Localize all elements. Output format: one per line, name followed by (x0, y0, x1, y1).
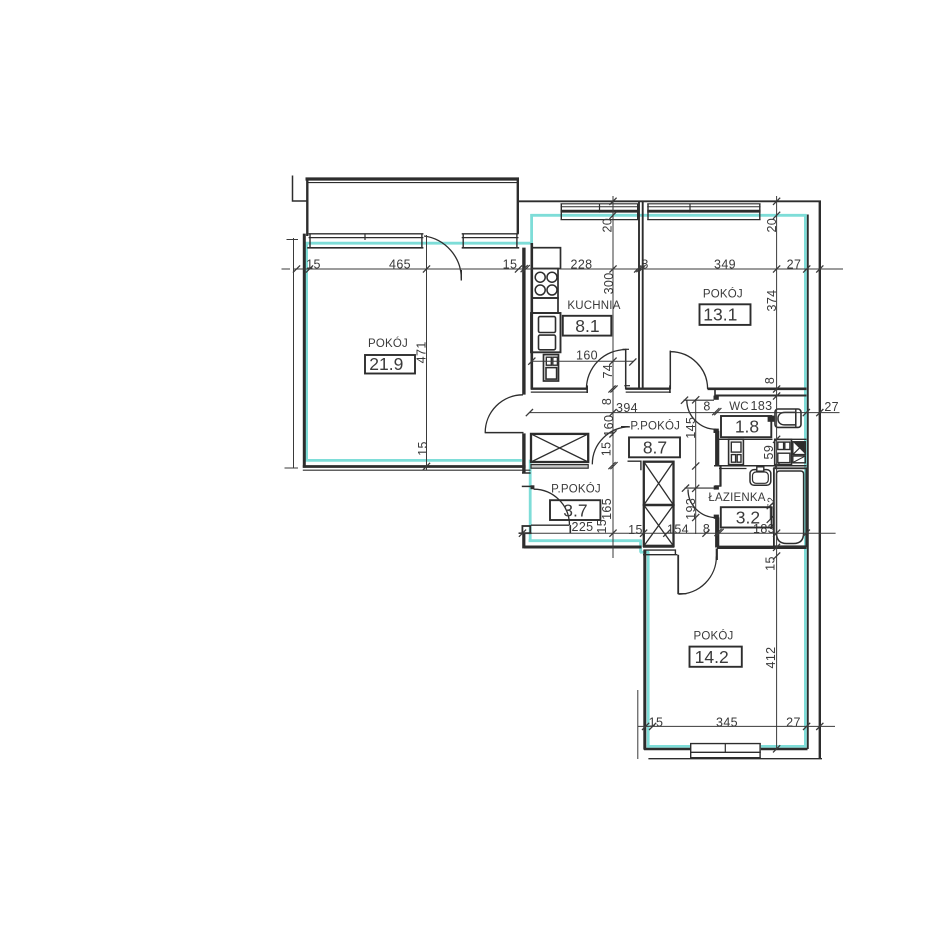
svg-text:15: 15 (503, 257, 518, 271)
svg-text:471: 471 (415, 341, 429, 363)
svg-text:160: 160 (602, 415, 616, 437)
svg-text:WC: WC (729, 401, 749, 413)
svg-text:349: 349 (714, 257, 736, 271)
svg-text:POKÓJ: POKÓJ (703, 287, 743, 300)
svg-text:15: 15 (416, 441, 430, 456)
svg-text:183: 183 (750, 399, 772, 413)
svg-text:15: 15 (595, 519, 609, 534)
svg-text:20: 20 (765, 218, 779, 233)
svg-text:145: 145 (684, 417, 698, 439)
svg-text:20: 20 (601, 218, 615, 233)
svg-text:225: 225 (571, 520, 593, 534)
svg-text:59: 59 (762, 445, 776, 460)
svg-text:ŁAZIENKA: ŁAZIENKA (708, 492, 765, 504)
svg-text:154: 154 (667, 523, 689, 537)
svg-text:27: 27 (824, 400, 839, 414)
svg-text:300: 300 (602, 272, 616, 294)
svg-text:8.7: 8.7 (643, 437, 667, 457)
svg-text:15: 15 (628, 523, 643, 537)
svg-text:1.8: 1.8 (735, 417, 759, 437)
svg-text:15: 15 (600, 442, 614, 457)
svg-text:8: 8 (763, 377, 777, 384)
svg-text:P.POKÓJ: P.POKÓJ (630, 420, 680, 433)
svg-text:8: 8 (703, 522, 710, 536)
svg-text:374: 374 (765, 289, 779, 311)
svg-text:193: 193 (684, 498, 698, 520)
svg-text:14.2: 14.2 (695, 647, 729, 667)
svg-text:8: 8 (600, 398, 614, 405)
svg-text:160: 160 (576, 348, 598, 362)
svg-text:228: 228 (570, 257, 592, 271)
svg-text:465: 465 (389, 257, 411, 271)
svg-text:394: 394 (616, 401, 638, 415)
svg-text:8.1: 8.1 (575, 316, 599, 336)
svg-text:8: 8 (641, 257, 648, 271)
svg-text:21.9: 21.9 (369, 354, 403, 374)
svg-text:345: 345 (716, 715, 738, 729)
svg-text:POKÓJ: POKÓJ (694, 630, 734, 643)
svg-text:3.7: 3.7 (563, 500, 587, 520)
svg-text:15: 15 (764, 556, 778, 571)
svg-text:165: 165 (600, 498, 614, 520)
svg-text:3.2: 3.2 (736, 507, 760, 527)
svg-text:27: 27 (787, 257, 802, 271)
svg-text:412: 412 (764, 646, 778, 668)
svg-text:13.1: 13.1 (703, 305, 737, 325)
svg-text:POKÓJ: POKÓJ (368, 337, 408, 350)
svg-text:8: 8 (703, 399, 710, 413)
svg-text:15: 15 (306, 257, 321, 271)
svg-text:KUCHNIA: KUCHNIA (567, 300, 620, 312)
svg-text:15: 15 (649, 715, 664, 729)
svg-text:27: 27 (786, 715, 801, 729)
svg-text:74: 74 (601, 364, 615, 379)
svg-text:P.POKÓJ: P.POKÓJ (551, 483, 601, 496)
